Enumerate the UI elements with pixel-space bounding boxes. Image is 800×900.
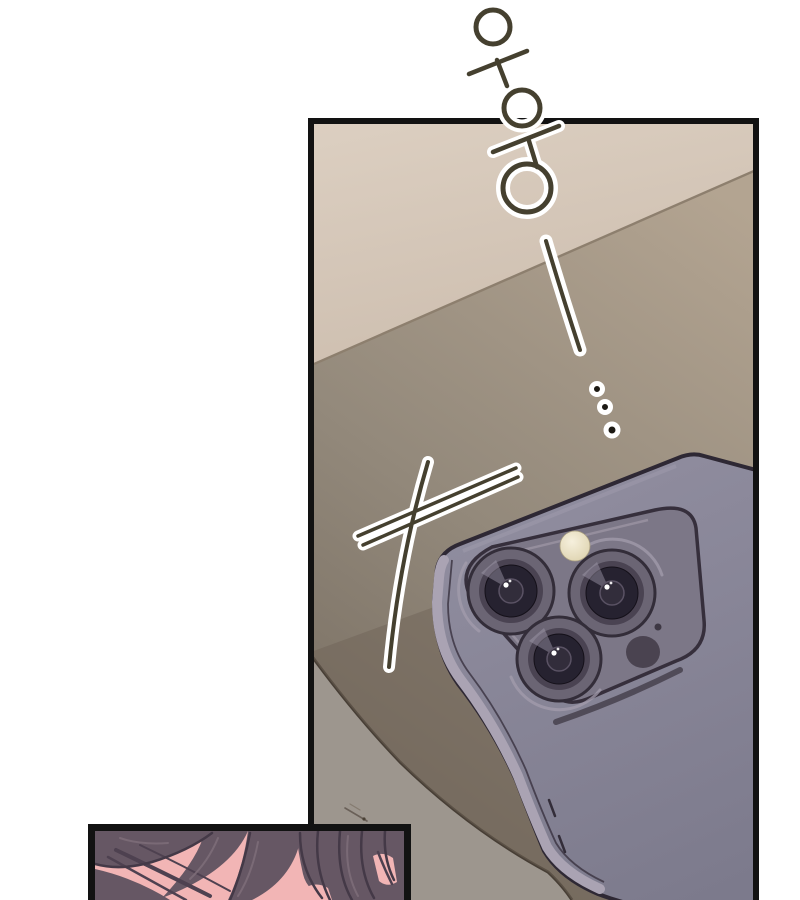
comic-art xyxy=(0,0,800,900)
webtoon-page: 우웅 ー … xyxy=(0,0,800,900)
main-panel-content xyxy=(311,124,756,900)
bottom-panel xyxy=(92,828,408,900)
camera-mic-dot xyxy=(655,624,662,631)
camera-flash xyxy=(560,531,590,561)
camera-lens-bottom xyxy=(517,617,601,701)
bottom-panel-content xyxy=(95,831,404,900)
lidar-sensor xyxy=(626,636,660,668)
main-panel xyxy=(311,121,756,900)
